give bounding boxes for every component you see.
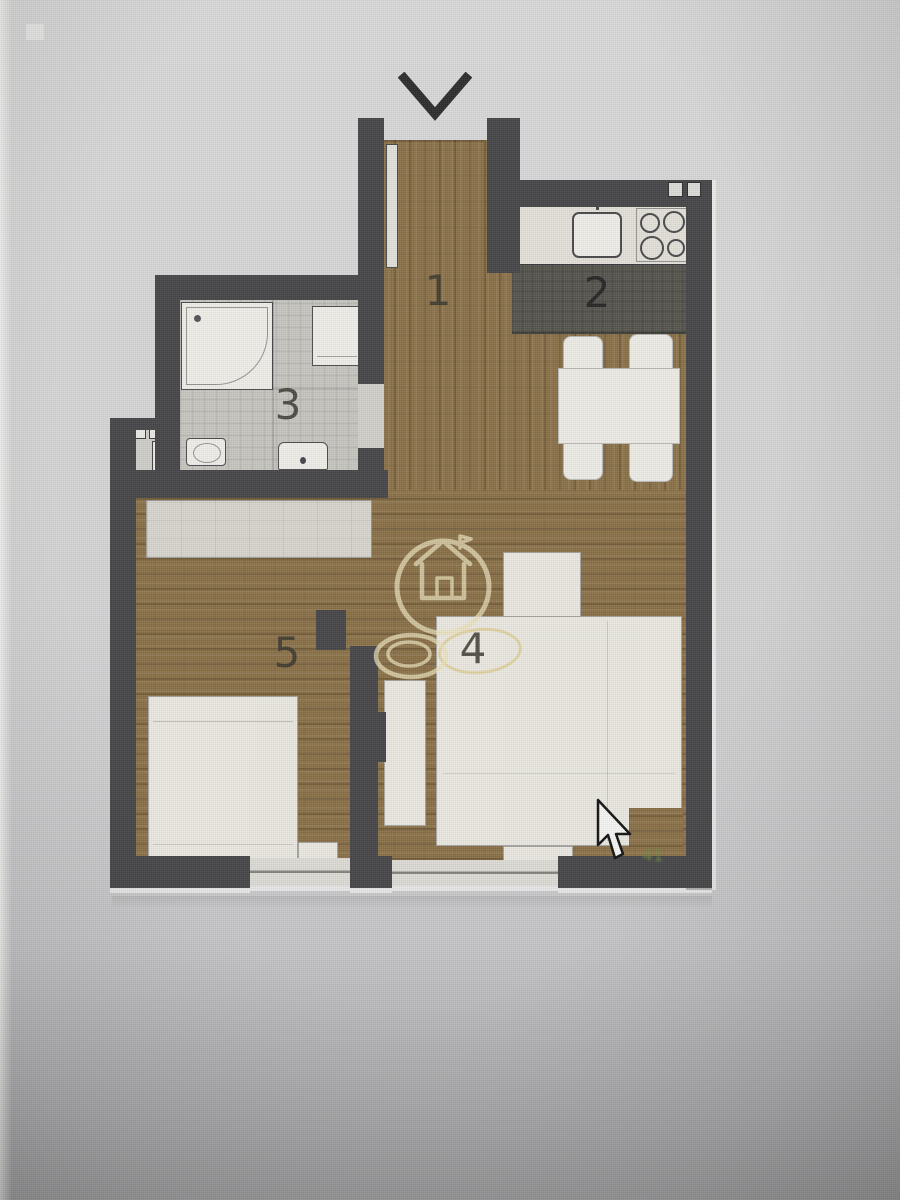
screen-artifact-square — [26, 24, 44, 40]
stove-burner-icon — [640, 213, 660, 233]
dining-table — [558, 368, 680, 444]
vent-shaft-icon — [687, 182, 701, 197]
wall-jamb-room5 — [316, 610, 346, 650]
washbasin-icon — [186, 438, 226, 466]
window-room4 — [392, 860, 558, 886]
bed-fold-line — [153, 844, 293, 845]
kitchen-sink-icon — [572, 212, 622, 258]
wall-left-outer — [110, 418, 136, 888]
bed-edge-line — [443, 773, 675, 774]
watermark-house-logo-icon — [358, 528, 533, 703]
floor-notch-room4 — [629, 808, 683, 847]
stove-burner-icon — [663, 211, 685, 233]
basin-bowl-line — [193, 443, 221, 463]
dining-chair — [629, 438, 673, 482]
room-label-3-bathroom: 3 — [275, 384, 302, 426]
wall-bath-bottom — [126, 470, 388, 498]
vent-shaft-icon — [668, 182, 683, 197]
stove-burner-icon — [640, 236, 664, 260]
washer-door-line — [317, 356, 357, 357]
bathroom-doorway — [358, 384, 384, 448]
wall-bottom-right — [558, 856, 712, 888]
bed-room5 — [148, 696, 298, 882]
wall-bath-top — [155, 275, 384, 300]
shower-drain-icon — [194, 315, 201, 322]
left-edge-glare — [0, 0, 12, 1200]
entrance-threshold-line — [384, 140, 484, 142]
entrance-door-leaf — [386, 144, 398, 268]
toilet-icon — [278, 442, 328, 470]
wall-bottom-left — [110, 856, 250, 888]
dining-chair — [563, 438, 603, 480]
wall-pier-room4 — [350, 712, 386, 762]
wall-hall-left-upper — [358, 118, 384, 384]
wall-right-outer — [686, 180, 712, 890]
toilet-flush-dot — [300, 457, 306, 464]
wall-bottom-mid — [350, 856, 392, 888]
plan-shadow — [112, 896, 712, 908]
green-annotation: 41 — [642, 846, 664, 866]
window-room5 — [250, 858, 350, 886]
entrance-arrow-icon — [398, 72, 472, 122]
washing-machine-icon — [312, 306, 362, 366]
wardrobe — [146, 500, 372, 558]
mouse-cursor-icon — [596, 798, 632, 862]
screen-photo: 1 2 3 4 5 41 — [0, 0, 900, 1200]
room-label-5-bedroom: 5 — [274, 632, 301, 674]
shower-tray-icon — [181, 302, 273, 390]
bed-pillow-line — [153, 721, 293, 722]
stove-burner-icon — [667, 239, 685, 257]
room-label-1-hallway: 1 — [425, 270, 452, 312]
wall-bath-left — [155, 275, 180, 472]
room-label-2-kitchen: 2 — [584, 272, 611, 314]
